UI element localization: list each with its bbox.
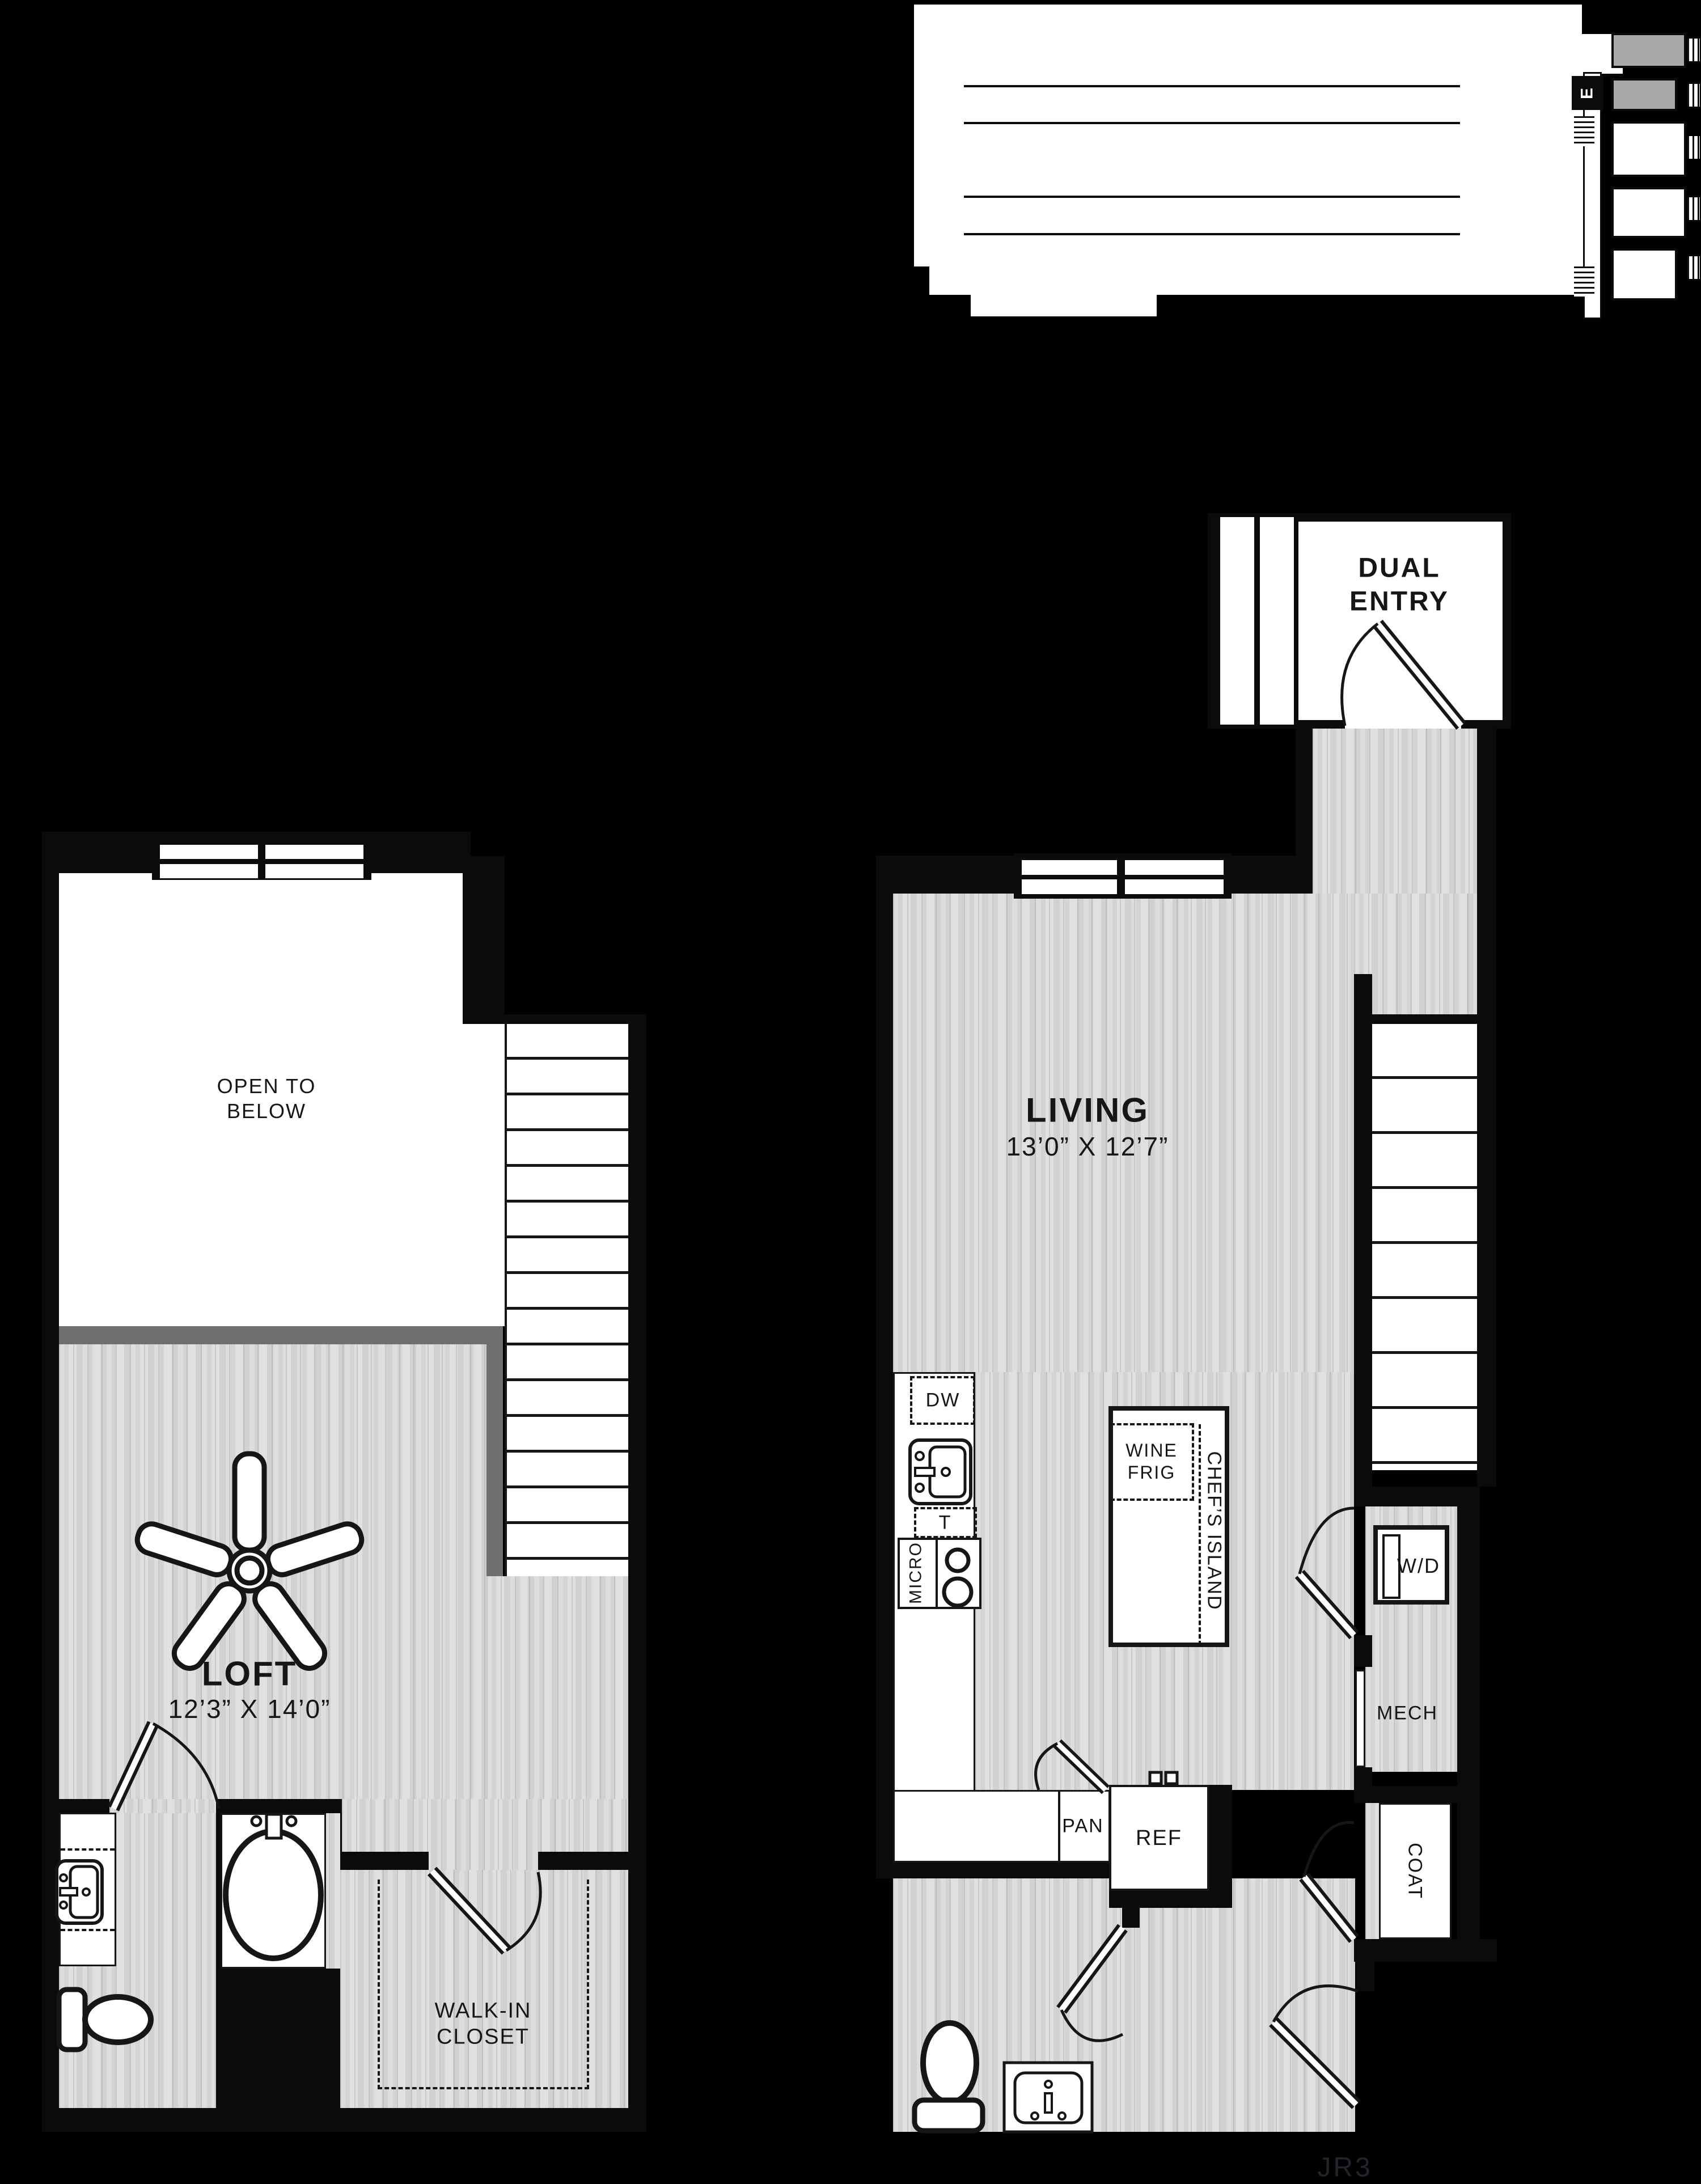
wall-segment [1356,1962,1374,1991]
wall-segment [1122,1908,1140,1928]
wall-segment [1209,1785,1232,1908]
loft-vanity [59,1813,116,1966]
pocket-door [1355,1670,1365,1767]
living-room-label: LIVING [1026,1089,1149,1131]
wall-segment [1354,974,1372,1487]
dishwasher-label: DW [926,1389,960,1412]
key-plan-stair-icon [1574,266,1594,297]
dual-entry-label: DUAL ENTRY [1349,552,1449,618]
window-pane [160,845,258,859]
wall-segment [876,856,893,1878]
chefs-island-label: CHEF’S ISLAND [1202,1451,1225,1610]
dual-entry-sidelite [1260,517,1294,725]
pantry-divider [1058,1792,1060,1861]
key-plan: E [0,0,1701,340]
microwave-label: MICRO [906,1542,927,1604]
wall-segment [216,1799,342,1813]
wall-segment [216,1969,340,2132]
key-plan-line [964,85,1460,87]
wall-segment [463,1014,646,1024]
key-plan-unit-highlighted [1611,33,1686,68]
key-plan-line [964,196,1460,198]
key-plan-stair-icon [1574,116,1594,146]
island-dashed-line [1199,1424,1201,1645]
washer-dryer-label: W/D [1397,1554,1440,1578]
window-pane [160,864,258,878]
trash-label: T [939,1511,952,1534]
refrigerator-label: REF [1136,1825,1182,1851]
wall-segment [59,1799,109,1813]
dual-entry-door-gap [1345,720,1461,729]
wall-segment [1354,1635,1372,1667]
wine-fridge-label: WINE FRIG [1125,1440,1178,1484]
mech-label: MECH [1377,1702,1438,1725]
wall-segment [42,2108,646,2132]
loft-floor [59,1344,486,1799]
key-plan-building-body [914,5,1623,318]
wall-segment [893,1863,1109,1878]
living-dimensions: 13’0” X 12’7” [1006,1131,1169,1162]
key-plan-line [964,122,1460,124]
loft-floor [486,1576,628,1799]
window-pane [1022,860,1117,875]
open-to-below-label: OPEN TO BELOW [217,1074,316,1124]
walk-in-closet-outline [378,1880,589,2089]
open-to-below-area [463,1024,505,1326]
wall-segment [340,1852,429,1870]
loft-floor [109,1799,216,1813]
key-plan-balcony-tick [1687,39,1700,61]
window-pane [1125,879,1224,894]
vanity-counter-line [61,1929,115,1931]
key-plan-unit [1611,121,1686,177]
key-plan-balcony-tick [1687,84,1700,107]
loft-stairs [505,1024,628,1576]
key-plan-line [964,233,1460,235]
wall-segment [1372,1014,1496,1024]
loft-half-wall [59,1326,503,1344]
coat-floor-strip [1365,1803,1379,1939]
wall-segment [463,856,505,1024]
entry-hall-floor [1313,729,1479,894]
wall-segment [628,1014,646,2132]
loft-dimensions: 12’3” X 14’0” [168,1693,331,1725]
plan-code: JR3 [1317,2152,1372,2184]
hall-floor [1354,894,1479,1014]
wall-segment [538,1852,628,1870]
wall-segment [1354,1939,1497,1962]
key-plan-unit-highlighted [1611,78,1677,111]
vanity-counter-line [61,1848,115,1851]
window-pane [265,845,363,859]
walk-in-closet-label: WALK-IN CLOSET [435,1998,532,2051]
key-plan-balcony-tick [1687,256,1700,279]
key-plan-unit [1611,248,1677,300]
key-plan-unit [1611,187,1686,238]
wall-segment [1109,1891,1232,1908]
dual-entry-sidelite [1220,517,1254,725]
coat-label: COAT [1403,1843,1426,1899]
main-stairs [1372,1024,1477,1470]
loft-half-wall [486,1344,503,1576]
key-plan-balcony-tick [1687,197,1700,220]
window-pane [1125,860,1224,875]
key-plan-elevator-label: E [1577,87,1598,99]
wall-segment [42,832,59,2132]
micro-range-divider [936,1540,938,1607]
loft-room-label: LOFT [202,1653,298,1694]
wall-segment [1457,1487,1480,1950]
wall-segment [1354,1786,1480,1803]
pantry-label: PAN [1062,1814,1103,1838]
key-plan-balcony-tick [1687,136,1700,159]
wall-segment [1477,729,1496,1487]
loft-tub-alcove [221,1813,326,1969]
floorplan-canvas: E [0,0,1701,2184]
window-pane [265,864,363,878]
window-pane [1022,879,1117,894]
